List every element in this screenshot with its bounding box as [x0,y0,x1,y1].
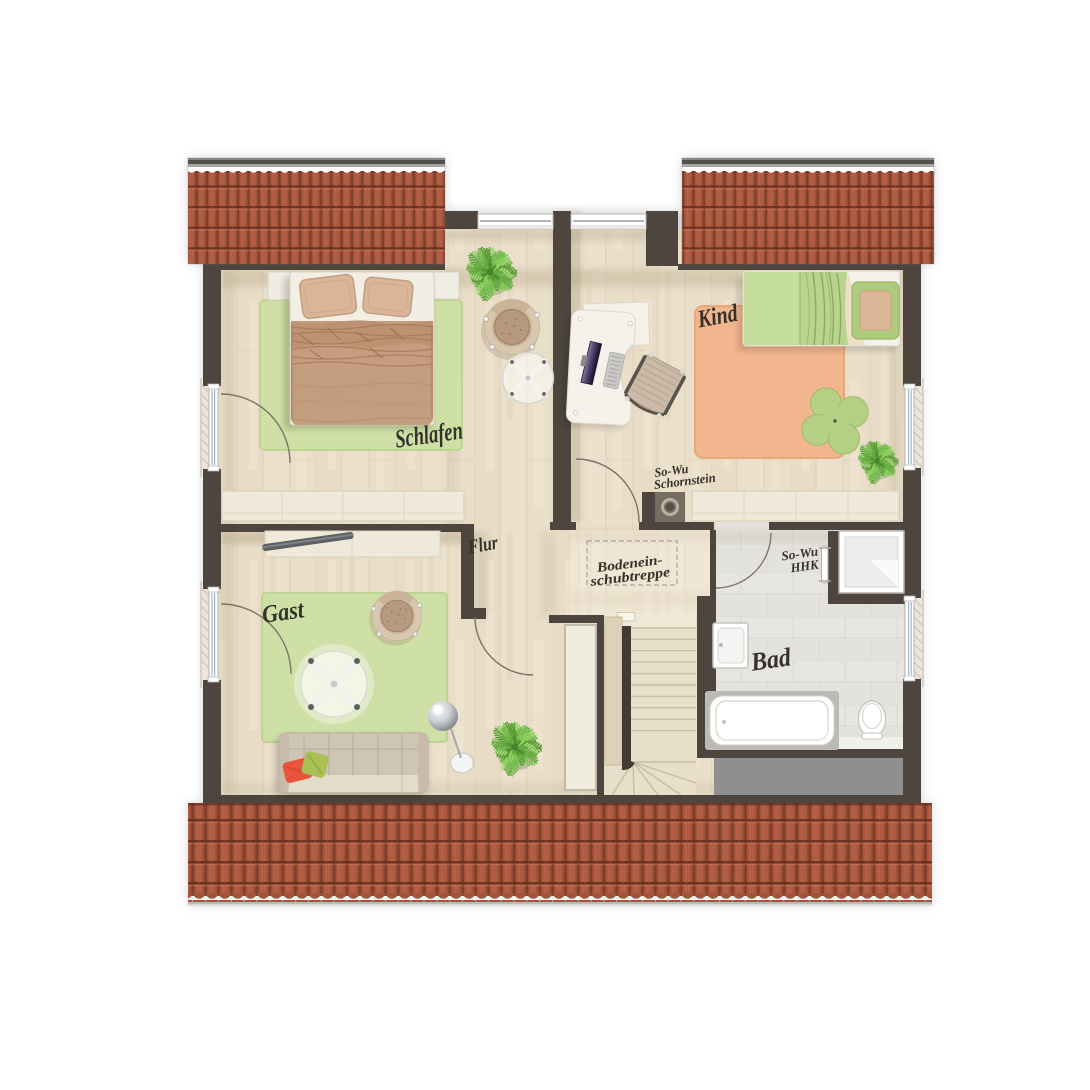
svg-text:Bad: Bad [748,642,793,677]
